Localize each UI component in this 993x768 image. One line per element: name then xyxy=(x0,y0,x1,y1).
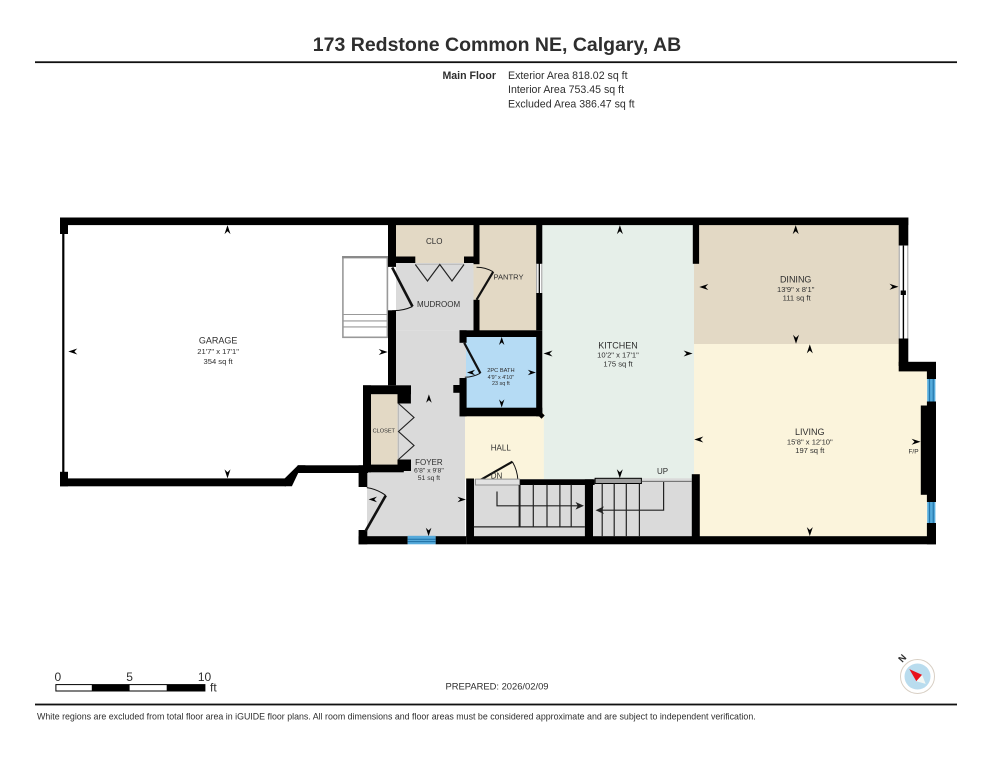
svg-text:Interior Area 753.45 sq ft: Interior Area 753.45 sq ft xyxy=(508,84,624,96)
svg-text:0: 0 xyxy=(54,670,61,684)
svg-text:10'2" x 17'1": 10'2" x 17'1" xyxy=(597,350,639,359)
svg-text:DINING: DINING xyxy=(780,275,812,285)
svg-text:MUDROOM: MUDROOM xyxy=(417,300,460,309)
svg-text:197 sq ft: 197 sq ft xyxy=(795,446,825,455)
svg-text:Exterior Area 818.02 sq ft: Exterior Area 818.02 sq ft xyxy=(508,70,628,82)
svg-text:F/P: F/P xyxy=(908,449,918,456)
svg-text:HALL: HALL xyxy=(491,444,512,453)
svg-text:5: 5 xyxy=(126,670,133,684)
svg-text:23 sq ft: 23 sq ft xyxy=(492,381,510,387)
svg-text:21'7" x 17'1": 21'7" x 17'1" xyxy=(197,347,239,356)
svg-text:173 Redstone Common NE, Calgar: 173 Redstone Common NE, Calgary, AB xyxy=(313,34,681,56)
svg-text:FOYER: FOYER xyxy=(415,458,443,467)
svg-text:2PC BATH: 2PC BATH xyxy=(487,368,514,374)
svg-text:LIVING: LIVING xyxy=(795,427,825,437)
svg-text:GARAGE: GARAGE xyxy=(199,336,238,346)
svg-text:Excluded Area 386.47 sq ft: Excluded Area 386.47 sq ft xyxy=(508,99,635,111)
svg-text:White regions are excluded fro: White regions are excluded from total fl… xyxy=(37,712,756,722)
svg-text:111 sq ft: 111 sq ft xyxy=(783,294,812,303)
svg-text:CLO: CLO xyxy=(426,237,442,246)
svg-text:Main Floor: Main Floor xyxy=(442,70,496,82)
svg-text:51 sq ft: 51 sq ft xyxy=(418,475,440,482)
svg-text:354 sq ft: 354 sq ft xyxy=(204,357,234,366)
svg-text:6'8" x 9'8": 6'8" x 9'8" xyxy=(414,467,444,474)
svg-text:PREPARED: 2026/02/09: PREPARED: 2026/02/09 xyxy=(445,680,548,691)
svg-text:ft: ft xyxy=(210,681,217,695)
svg-text:DN: DN xyxy=(491,472,503,481)
svg-text:KITCHEN: KITCHEN xyxy=(598,340,638,350)
svg-text:PANTRY: PANTRY xyxy=(493,273,523,282)
svg-text:UP: UP xyxy=(657,467,668,476)
svg-text:CLOSET: CLOSET xyxy=(373,428,396,434)
svg-text:175 sq ft: 175 sq ft xyxy=(603,359,633,368)
